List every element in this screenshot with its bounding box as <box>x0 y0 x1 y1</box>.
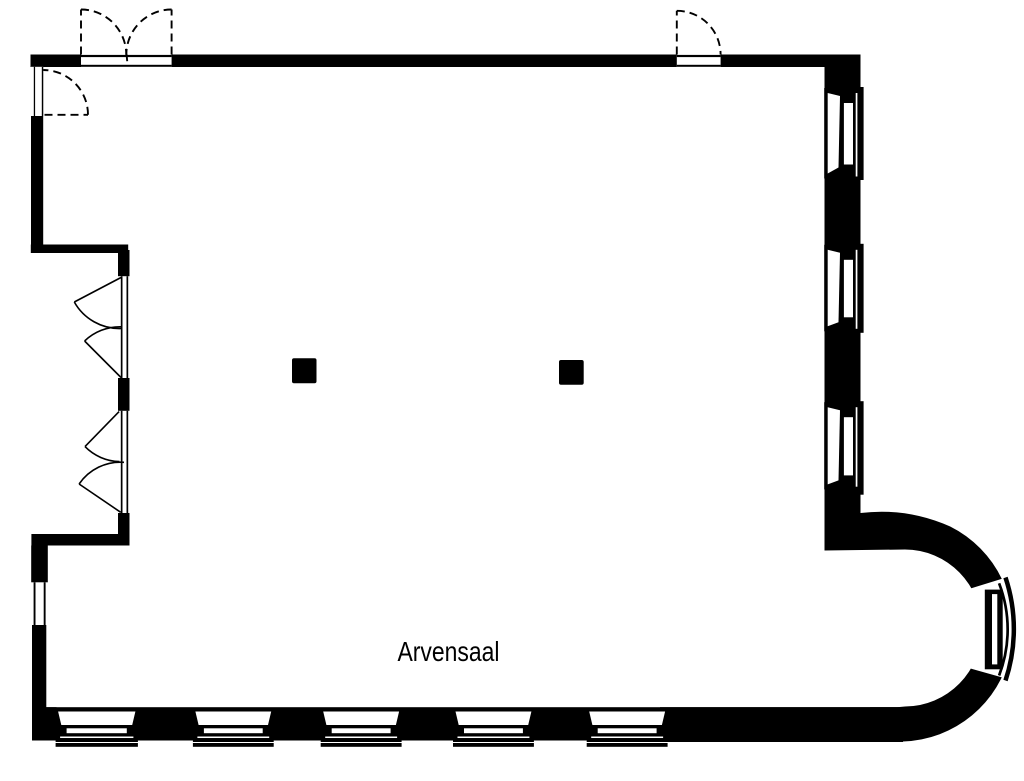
svg-text:Arvensaal: Arvensaal <box>398 636 500 667</box>
